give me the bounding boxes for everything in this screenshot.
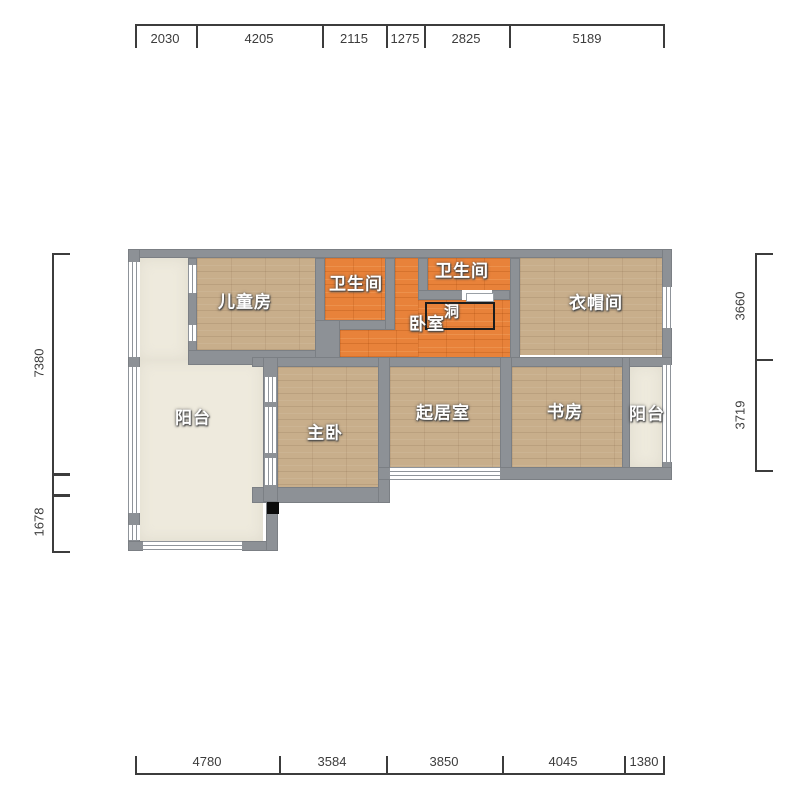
window-right-cloakroom [662,287,672,328]
dim-top-tick [196,24,198,48]
window-master-balcony [264,377,277,485]
dim-left-line [52,253,54,553]
dim-left-value: 1678 [32,508,47,537]
dim-left-tick [52,253,70,255]
dim-bottom-tick [502,756,504,775]
wall-top [128,249,672,258]
label-living-room: 起居室 [416,399,470,424]
dim-top-value: 5189 [573,31,602,46]
wall-midrow-top [252,357,672,367]
dim-top-value: 2825 [452,31,481,46]
window-left-wall-1 [128,262,140,357]
dim-bottom-tick [386,756,388,775]
dim-right-value: 3719 [733,401,748,430]
dim-left-tick [52,473,70,476]
window-children-1 [188,265,197,293]
window-mullion-1 [264,402,277,407]
label-bathroom-left: 卫生间 [329,270,383,295]
dim-left-tick [52,494,70,497]
label-balcony-left: 阳台 [175,404,211,429]
label-cloakroom: 衣帽间 [569,289,623,314]
dim-top-tick [322,24,324,48]
wall-bath-left-right [385,258,395,330]
corner-marker [267,502,279,514]
wall-living-study [500,357,512,480]
dim-top-tick [509,24,511,48]
window-left-wall-2 [128,367,140,513]
dim-top-tick [663,24,665,48]
floor-plan-canvas: 儿童房 卫生间 卫生间 卧室 洞 衣帽间 阳台 主卧 起居室 书房 阳台 203… [0,0,800,800]
dim-bottom-tick [624,756,626,775]
dim-top-value: 4205 [245,31,274,46]
dim-bottom-value: 3850 [430,754,459,769]
dim-top-tick [135,24,137,48]
label-hole: 洞 [444,301,460,322]
dim-bottom-tick [663,756,665,775]
dim-right-line [755,253,757,472]
window-children-2 [188,325,197,341]
dim-bottom-value: 4780 [193,754,222,769]
dim-bottom-value: 4045 [549,754,578,769]
dim-top-value: 2030 [151,31,180,46]
door-leaf-bathroom-top [466,293,494,302]
dim-bottom-value: 1380 [630,754,659,769]
floor-balcony-left-upper [138,258,188,360]
window-left-wall-3 [128,525,140,540]
dim-top-line [135,24,665,26]
dim-bottom-value: 3584 [318,754,347,769]
dim-top-value: 2115 [340,31,368,46]
dim-left-value: 7380 [32,349,47,378]
dim-bottom-tick [135,756,137,775]
label-bedroom: 卧室 [409,310,445,335]
dim-left-tick [52,551,70,553]
floor-balcony-left-lower [138,360,263,541]
label-study: 书房 [547,398,583,423]
dim-top-value: 1275 [391,31,420,46]
dim-right-tick [755,359,773,361]
label-children-room: 儿童房 [218,288,272,313]
wall-cloakroom-left [510,258,520,365]
label-master-bedroom: 主卧 [307,419,343,444]
label-balcony-right: 阳台 [629,400,665,425]
window-balcony-bottom [143,541,242,551]
dim-top-tick [386,24,388,48]
label-bathroom-top: 卫生间 [435,257,489,282]
floor-bedroom-band [340,330,418,360]
dim-bottom-line [135,773,665,775]
dim-top-tick [424,24,426,48]
window-mullion-2 [264,453,277,458]
dim-right-tick [755,253,773,255]
dim-bottom-tick [279,756,281,775]
window-living-bottom [390,467,500,480]
wall-master-right [378,357,390,503]
dim-right-tick [755,470,773,472]
dim-right-value: 3660 [733,292,748,321]
